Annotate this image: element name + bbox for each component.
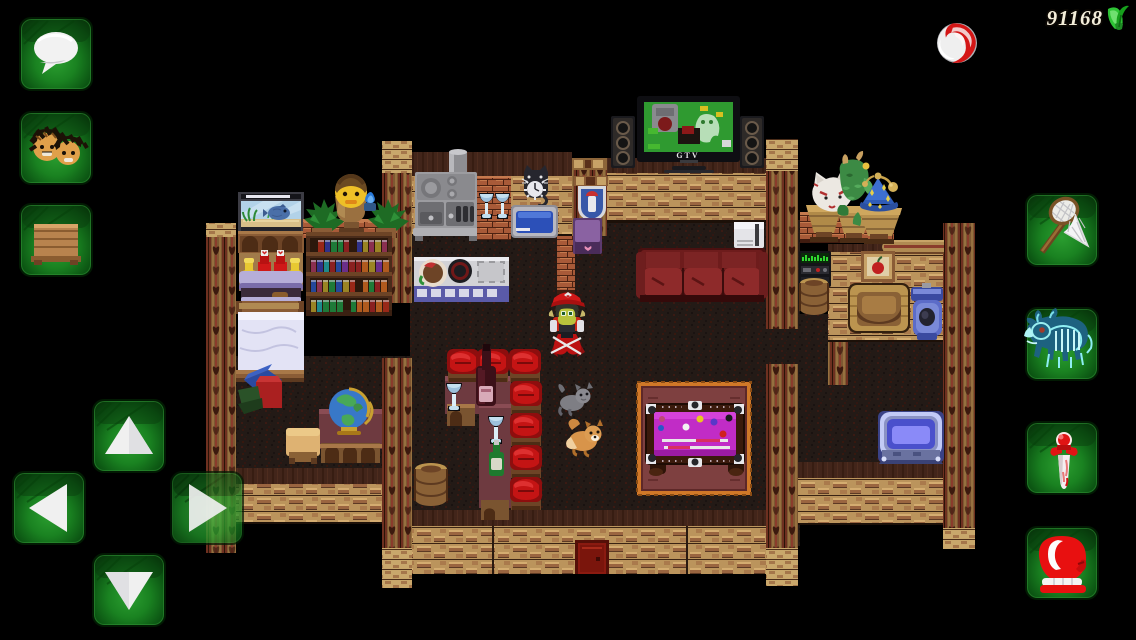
svg-text:91168: 91168 (1047, 6, 1103, 30)
svg-text:GTV: GTV (676, 151, 699, 160)
